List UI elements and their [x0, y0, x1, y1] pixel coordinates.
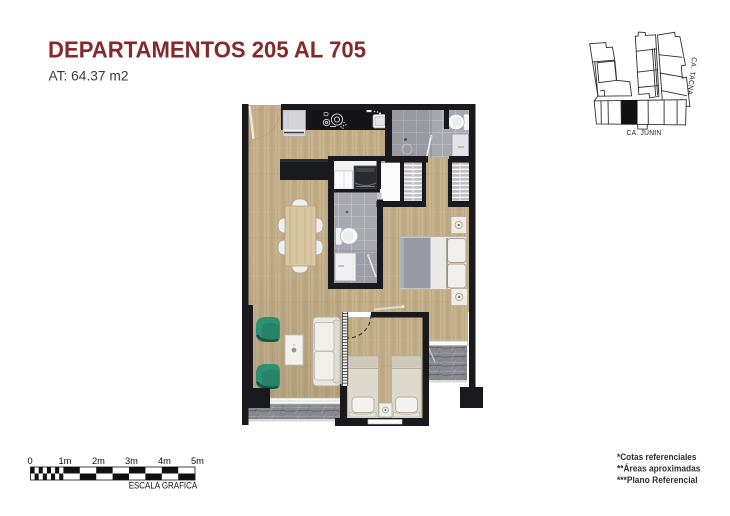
svg-text:**Áreas aproximadas: **Áreas aproximadas [617, 463, 700, 474]
svg-text:5m: 5m [191, 456, 204, 466]
svg-text:0: 0 [28, 456, 33, 466]
svg-text:CA. JUNIN: CA. JUNIN [627, 128, 662, 137]
svg-text:***Plano Referencial: ***Plano Referencial [617, 475, 698, 485]
svg-text:3m: 3m [125, 456, 138, 466]
svg-text:ESCALA GRAFICA: ESCALA GRAFICA [129, 481, 198, 491]
svg-text:1m: 1m [59, 456, 72, 466]
svg-text:DEPARTAMENTOS 205 AL 705: DEPARTAMENTOS 205 AL 705 [48, 37, 366, 63]
svg-text:CA. TACNA: CA. TACNA [685, 57, 699, 96]
svg-text:*Cotas referenciales: *Cotas referenciales [617, 452, 697, 462]
svg-text:2m: 2m [92, 456, 105, 466]
svg-text:AT: 64.37 m2: AT: 64.37 m2 [49, 69, 129, 85]
svg-text:4m: 4m [158, 456, 171, 466]
